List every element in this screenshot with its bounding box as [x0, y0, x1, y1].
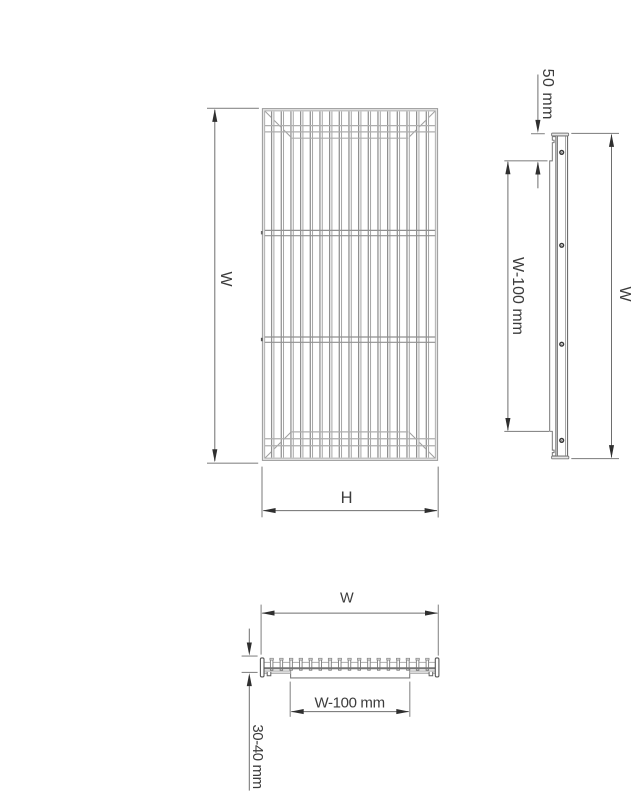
- svg-text:H: H: [341, 489, 353, 507]
- svg-text:W: W: [217, 271, 234, 287]
- svg-text:30-40 mm: 30-40 mm: [249, 724, 266, 788]
- svg-text:50 mm: 50 mm: [539, 69, 556, 120]
- svg-text:W-100 mm: W-100 mm: [314, 694, 384, 711]
- svg-text:W: W: [340, 590, 354, 606]
- svg-text:W-100 mm: W-100 mm: [509, 257, 526, 335]
- svg-text:W: W: [616, 286, 633, 302]
